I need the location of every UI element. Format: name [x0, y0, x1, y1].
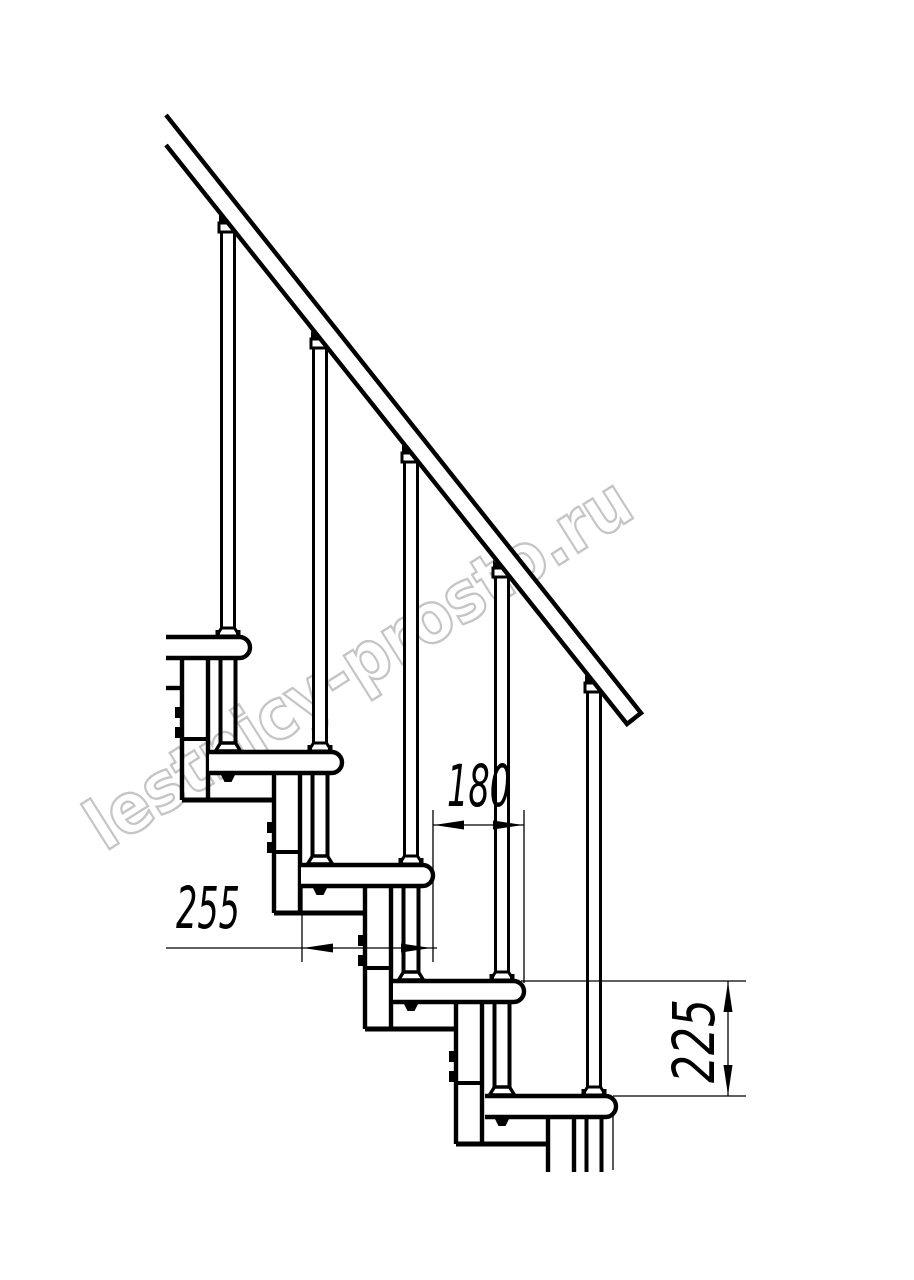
baluster-3-base-nub	[399, 858, 404, 864]
staircase-technical-drawing: lestnicy-prosto.ru255180225	[0, 0, 914, 1280]
baluster-3-tube	[405, 462, 418, 856]
baluster-2-base-nub	[328, 745, 333, 751]
tread-4	[393, 981, 524, 1002]
baluster-4-base-nub	[490, 974, 495, 980]
baluster-3-base-nub	[419, 858, 424, 864]
column-1-bolt	[175, 707, 182, 718]
baluster-5-base-nub	[602, 1089, 607, 1095]
dim-label-225: 225	[660, 999, 728, 1083]
baluster-1-base-nub	[216, 630, 221, 636]
tread-4-nut	[403, 1002, 419, 1011]
tread-3-nut	[312, 886, 328, 895]
baluster-5-base-nub	[582, 1089, 587, 1095]
dim-arrow-left	[303, 944, 333, 953]
tread-3	[301, 865, 433, 886]
baluster-4-base-nub	[510, 974, 515, 980]
dim-label-255: 255	[176, 874, 240, 942]
watermark-text: lestnicy-prosto.ru	[70, 460, 646, 866]
tread-2	[209, 752, 342, 773]
dim-label-180: 180	[447, 752, 511, 820]
baluster-5-tube	[588, 692, 601, 1087]
dim-arrow-right	[401, 944, 431, 953]
column-3-bolt	[358, 935, 365, 946]
column-4-bolt	[449, 1071, 456, 1082]
baluster-2-base-nub	[308, 745, 313, 751]
tread-5	[485, 1096, 616, 1117]
staircase-drawing-page: lestnicy-prosto.ru255180225	[0, 0, 914, 1280]
column-3-bolt	[358, 955, 365, 966]
dim-arrow-left	[434, 821, 464, 830]
column-1-bolt	[175, 727, 182, 738]
column-2-bolt	[267, 822, 274, 833]
column-4-bolt	[449, 1051, 456, 1062]
baluster-2-tube	[314, 348, 327, 743]
column-2-bolt	[267, 842, 274, 853]
baluster-1-tube	[222, 232, 235, 628]
baluster-1-base-nub	[236, 630, 241, 636]
tread-1	[166, 637, 250, 658]
tread-5-nut	[494, 1117, 510, 1126]
